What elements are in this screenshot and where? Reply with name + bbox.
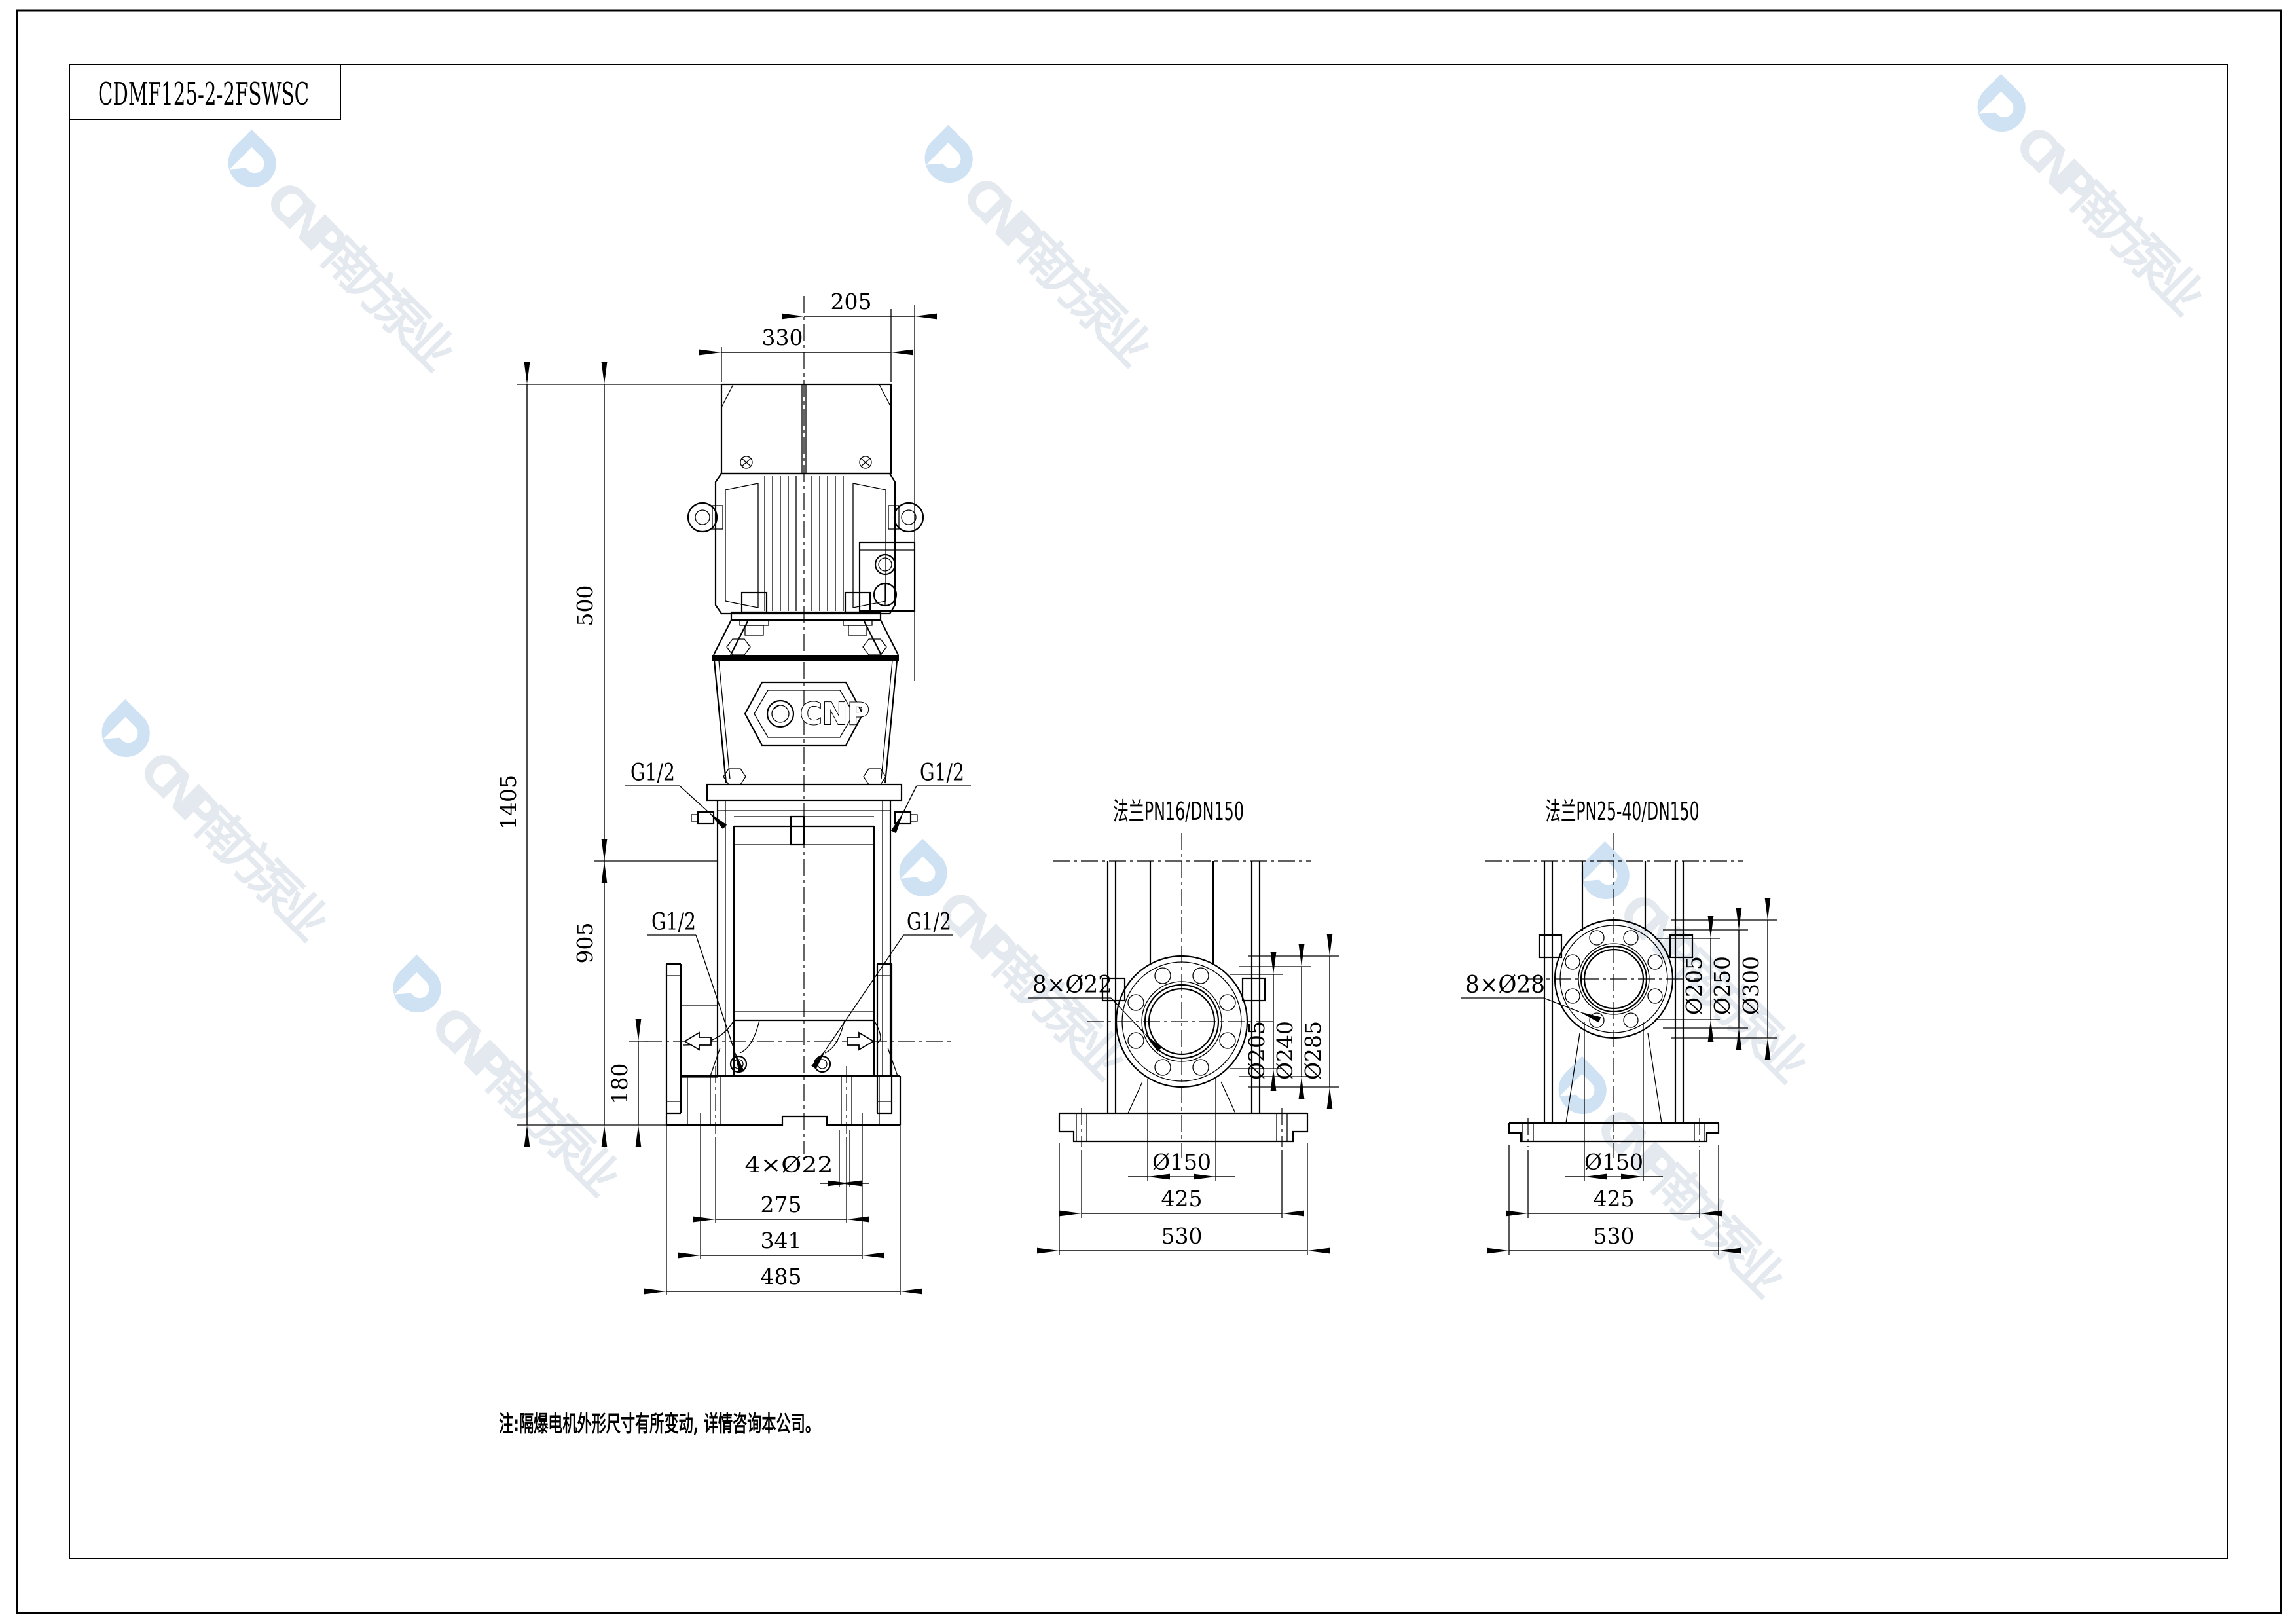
flange-view-pn16: 法兰PN16/DN150 xyxy=(1028,797,1339,1255)
dim-bolt-circle: Ø250 xyxy=(1709,956,1735,1015)
pump-barrel xyxy=(683,800,898,1076)
flow-arrow-right-icon xyxy=(847,1033,873,1050)
dim-pump-height: 905 xyxy=(572,923,598,964)
flange-pn25-title: 法兰PN25-40/DN150 xyxy=(1546,797,1700,826)
flange-pn16-dimensions: Ø205 Ø240 Ø285 8×Ø22 Ø150 425 xyxy=(1028,956,1339,1255)
drain-plug-left xyxy=(731,1056,746,1072)
dim-base-width: 485 xyxy=(761,1264,802,1289)
front-view-dimensions: 205 330 500 905 1405 180 xyxy=(496,289,915,1295)
dim-port-height: 180 xyxy=(607,1063,632,1105)
dim-fan-width: 330 xyxy=(762,325,803,350)
bolt-holes-label: 8×Ø22 xyxy=(1032,972,1112,999)
vent-plug-right xyxy=(895,812,911,824)
dim-total-height: 1405 xyxy=(496,775,521,830)
centerlines xyxy=(645,296,953,1154)
dim-outer-diameter: Ø285 xyxy=(1300,1021,1326,1080)
dim-outer-diameter: Ø300 xyxy=(1738,956,1764,1015)
front-view: CNP xyxy=(496,289,971,1295)
dim-base-width: 530 xyxy=(1594,1223,1635,1249)
badge-text: CNP xyxy=(800,696,869,731)
drawing-note: 注:隔爆电机外形尺寸有所变动, 详情咨询本公司。 xyxy=(499,1411,820,1437)
dim-motor-height: 500 xyxy=(572,585,598,627)
lifting-eye-right xyxy=(888,503,923,532)
flange-base xyxy=(1059,1082,1307,1147)
tie-rods xyxy=(1102,861,1265,1113)
port-label-top-right: G1/2 xyxy=(920,760,964,786)
port-labels: G1/2 G1/2 G1/2 G1/2 xyxy=(625,760,971,1051)
dim-hole-spacing: 275 xyxy=(761,1192,802,1217)
vent-plug-left xyxy=(698,812,714,824)
technical-drawing: CDMF125-2-2FSWSC xyxy=(0,0,2296,1624)
flange-pn16-title: 法兰PN16/DN150 xyxy=(1113,797,1244,826)
port-label-mid-right: G1/2 xyxy=(907,909,951,936)
dim-top-offset: 205 xyxy=(831,289,872,314)
dim-face-diameter: Ø205 xyxy=(1681,956,1707,1015)
port-label-top-left: G1/2 xyxy=(630,760,675,786)
motor-stool xyxy=(714,593,898,655)
drawing-sheet: CNP南方泵业 CNP南方泵业 CNP南方泵业 CNP南方泵业 CNP南方泵业 … xyxy=(0,0,2296,1624)
dim-base-width: 530 xyxy=(1161,1223,1203,1249)
dim-base-mid-width: 341 xyxy=(761,1228,802,1253)
pump-base xyxy=(666,1076,900,1125)
flow-arrow-left-icon xyxy=(685,1033,711,1050)
lifting-eye-left xyxy=(688,503,723,532)
dim-bolt-span: 425 xyxy=(1594,1186,1635,1211)
model-number: CDMF125-2-2FSWSC xyxy=(98,76,309,113)
dim-bolt-span: 425 xyxy=(1161,1186,1203,1211)
pipe-flanges xyxy=(666,964,892,1125)
bolt-holes-label: 8×Ø28 xyxy=(1465,972,1545,999)
port-label-mid-left: G1/2 xyxy=(651,909,696,936)
flange-view-pn25: 法兰PN25-40/DN150 xyxy=(1461,797,1777,1255)
dim-bolt-circle: Ø240 xyxy=(1272,1021,1298,1080)
dim-foundation-holes: 4×Ø22 xyxy=(745,1152,833,1177)
terminal-box xyxy=(860,542,915,611)
dim-face-diameter: Ø205 xyxy=(1244,1021,1269,1080)
flange-pn25-dimensions: Ø205 Ø250 Ø300 8×Ø28 Ø150 425 xyxy=(1461,920,1777,1255)
dim-bore: Ø150 xyxy=(1584,1149,1643,1175)
drain-plug-right xyxy=(814,1056,830,1072)
motor-fan-cover xyxy=(721,384,891,473)
dim-bore: Ø150 xyxy=(1152,1149,1211,1175)
